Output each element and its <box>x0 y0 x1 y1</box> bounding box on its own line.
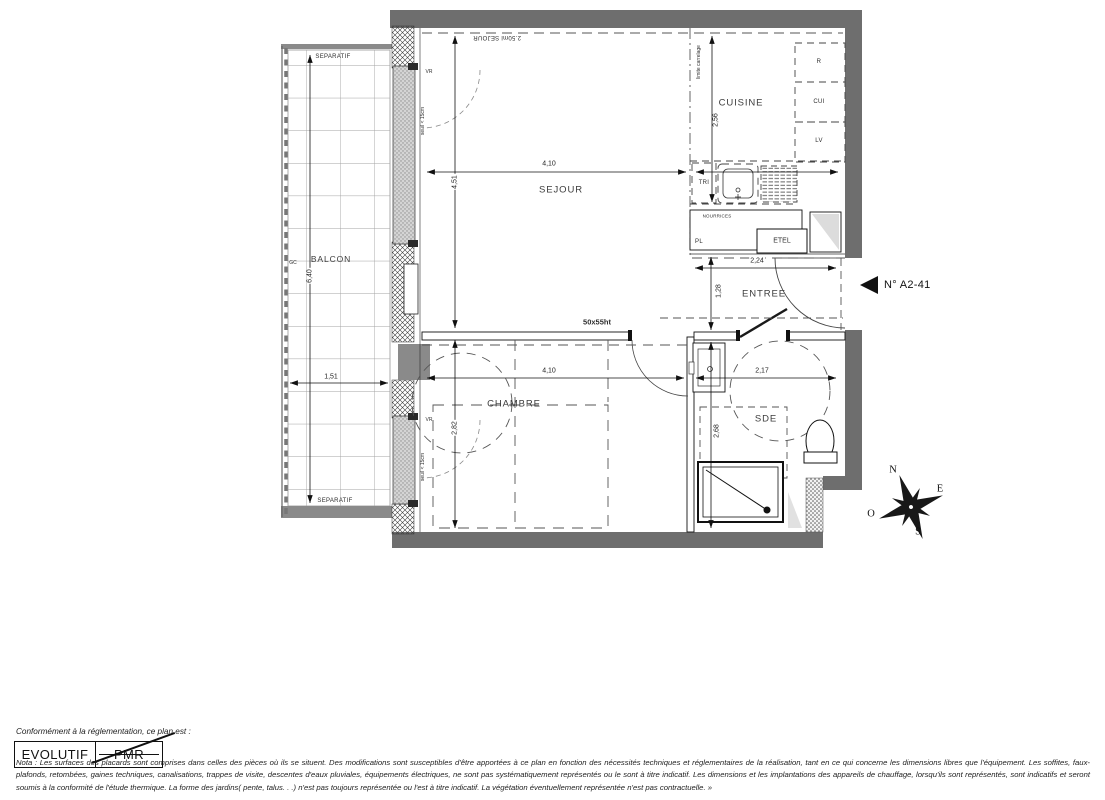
room-label-sde: SDE <box>755 414 777 425</box>
floor-plan-drawing <box>0 0 1105 720</box>
nota-paragraph: Nota : Les surfaces des placards sont co… <box>16 757 1090 794</box>
dim-sejour-height: 4,51 <box>452 174 459 190</box>
dashed-guides <box>412 28 845 528</box>
room-label-chambre: CHAMBRE <box>487 399 541 410</box>
drainer-icon <box>761 166 797 202</box>
compass-icon <box>867 463 954 550</box>
nourrices-label: NOURRICES <box>703 214 732 219</box>
dim-sde-width: 2,17 <box>754 368 770 375</box>
dim-sde-height: 2,68 <box>714 423 721 439</box>
sejour-window-swing <box>422 70 480 128</box>
compass-west-label: O <box>867 509 875 520</box>
sejour-window <box>393 63 418 247</box>
fridge-label: R <box>817 59 822 65</box>
gc-label: GC <box>289 260 297 266</box>
vr-chambre-label: VR <box>426 417 433 423</box>
dim-entree-width: 2,24 <box>749 258 765 265</box>
unit-number-label: N° A2-41 <box>884 279 931 291</box>
chambre-window <box>393 413 418 507</box>
balcony <box>281 44 392 518</box>
compass-east-label: E <box>937 484 943 495</box>
compass-north-label: N <box>889 465 897 476</box>
room-label-balcon: BALCON <box>311 254 351 264</box>
sde-door-leaf <box>740 309 787 337</box>
dim-chambre-width: 4,10 <box>541 368 557 375</box>
bay-sejour-label: 2.50ml SEJOUR <box>471 34 523 40</box>
room-label-sejour: SEJOUR <box>539 185 583 196</box>
chambre-door-arc <box>632 340 688 396</box>
shower-shade <box>788 492 802 528</box>
separatif-top-label: SEPARATIF <box>315 54 350 60</box>
walls <box>390 10 862 548</box>
toilet-icon <box>804 420 837 463</box>
tri-label: TRI <box>699 180 710 186</box>
entrance-arrow-icon <box>860 276 878 294</box>
limite-carrelage-label: limite carrelage <box>696 45 702 79</box>
bed-zone <box>433 405 608 528</box>
dim-balcon-height: 6,40 <box>307 268 314 284</box>
separatif-bottom-label: SEPARATIF <box>317 498 352 504</box>
radiator-box <box>398 344 430 380</box>
cooktop-label: CUI <box>813 99 824 105</box>
dim-sejour-width: 4,10 <box>541 161 557 168</box>
kitchen-fixtures <box>690 43 845 254</box>
room-label-entree: ENTREE <box>742 289 786 300</box>
dim-cuisine-height: 2,56 <box>713 112 720 128</box>
dim-entree-height: 1,28 <box>716 283 723 299</box>
dim-balcon-width: 1,51 <box>323 374 339 381</box>
cloison-label: 50x55ht <box>582 318 612 327</box>
seuil-chambre-label: seuil < 15cm <box>420 453 426 481</box>
seuil-sejour-label: seuil < 15cm <box>420 107 426 135</box>
floor-plan-page: SEPARATIF SEPARATIF GC BALCON 6,40 1,51 … <box>0 0 1105 800</box>
room-label-cuisine: CUISINE <box>719 98 764 109</box>
pipe-column <box>404 264 418 314</box>
doors <box>422 70 845 478</box>
dishwasher-label: LV <box>815 138 823 144</box>
pl-label: PL <box>695 239 703 245</box>
vr-sejour-label: VR <box>426 69 433 75</box>
compass-south-label: S <box>915 527 921 538</box>
dim-chambre-height: 2,82 <box>452 420 459 436</box>
sink-icon <box>689 343 725 392</box>
etel-label: ETEL <box>773 238 791 245</box>
duct-hatch <box>806 478 823 532</box>
